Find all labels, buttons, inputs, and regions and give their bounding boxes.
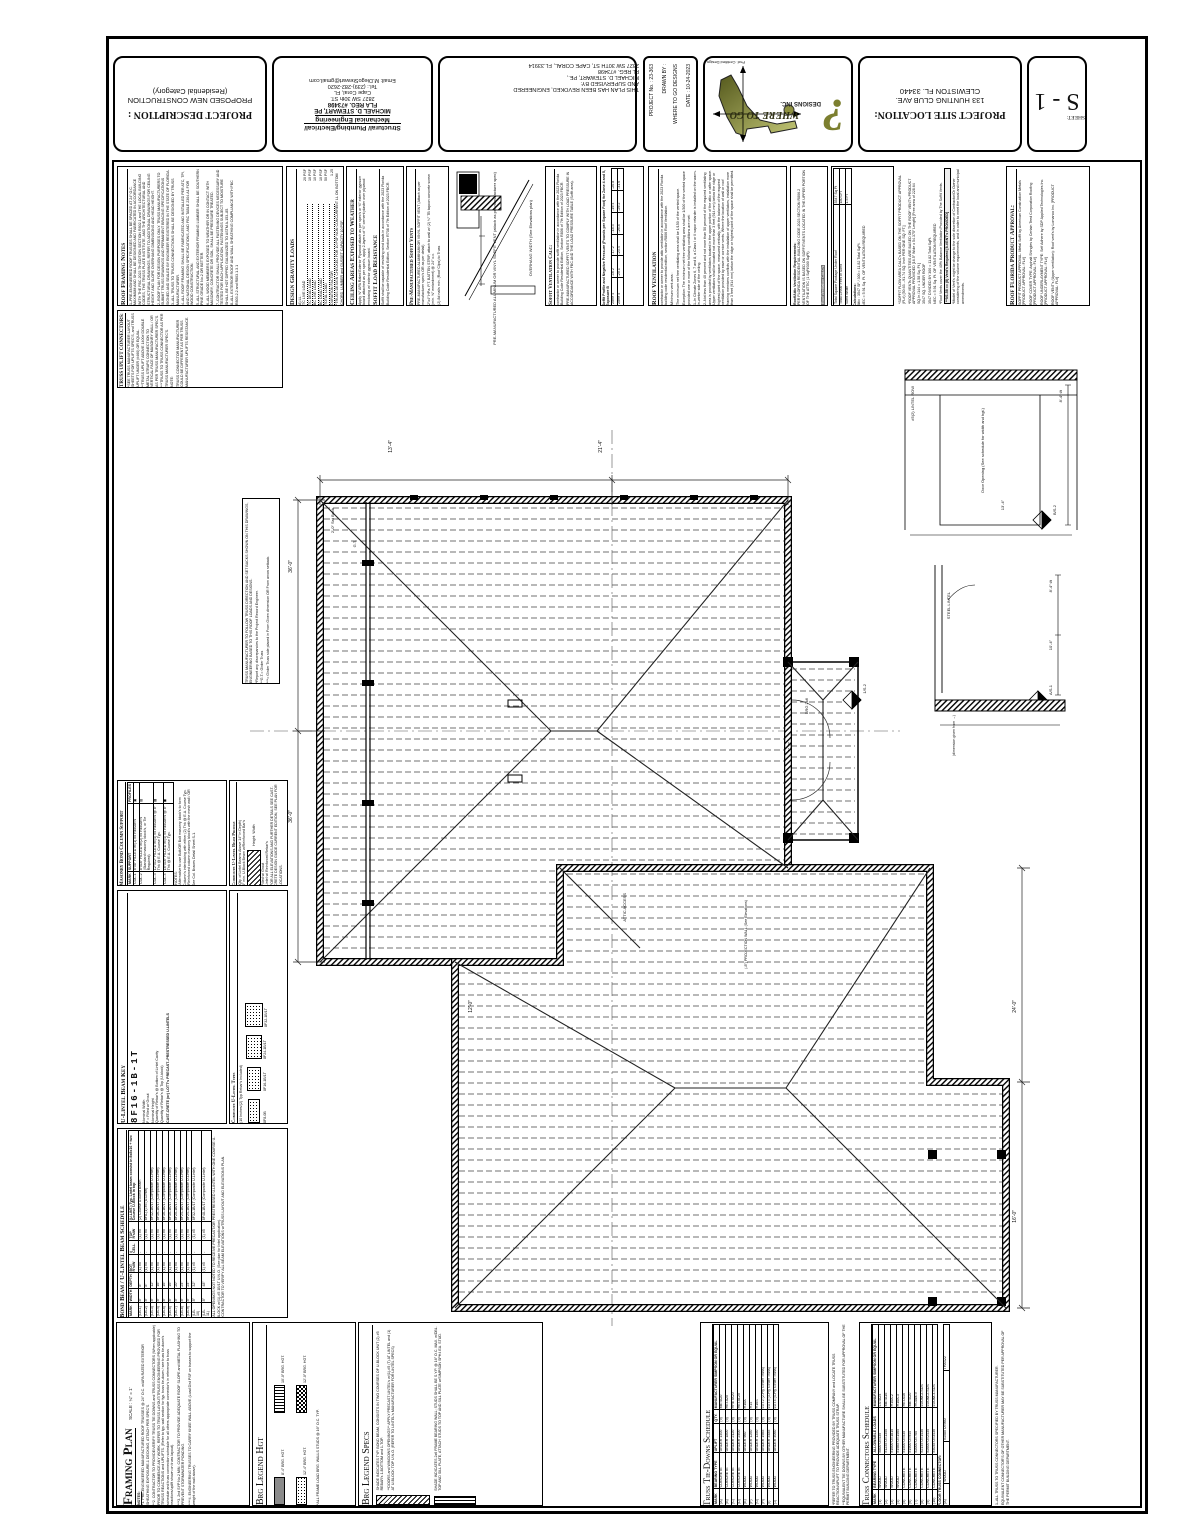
ceiling-body: Apply ⅝″ APA Rated Exterior Plywood atta… <box>358 169 371 305</box>
note-line: *Report any discrepancies to the Project… <box>255 501 259 683</box>
tie-downs-notes: *REFER TO TRUSS ENGINEERING PROVIDED BY … <box>831 1322 857 1506</box>
lintel-key-footnote: CAST-CRETE (or) LOTT's PRECAST–PRESTRESS… <box>166 893 170 1123</box>
note-line: NEC = 5.91 Sq. Ft. OF VENTILATION REQUIR… <box>933 168 937 304</box>
bb-bot: (1) #5 <box>192 1254 202 1273</box>
soffit-calc-title: Soffit Ventilation Calc: <box>548 169 555 305</box>
note-line: (2) 8d nails min. (Roof Clips) to Truss <box>437 169 441 305</box>
note-line: NOTE: <box>170 313 174 387</box>
note-girder-truss: TRUSS MANUFACTURER TO FOLLOW TRUSS DIREC… <box>242 498 280 684</box>
lintel-key-top: Quantity of Rebar's @ Top (U-block) <box>160 893 164 1123</box>
detail2-caption: (dimension given from →) <box>952 715 956 756</box>
bb-top: (1) #5 <box>192 1222 202 1240</box>
gravity-footnote: *TRUSS DESIGN CHECKED FOR 10 PSF NON CON… <box>335 169 344 305</box>
note-line: 1–ALL TRUSS TO TRUSS CONNECTORS SPECIFIE… <box>995 1323 999 1505</box>
note-line: **2. CONTRACTOR TO PROVIDE/VERIFY TRUSS … <box>152 1325 174 1505</box>
bond-beam-header: WIDTH <box>129 1288 139 1303</box>
note-product-approval: Roof Florida Product Approval: SOFFIT PR… <box>1006 166 1090 306</box>
dim-label: 16'-0″ <box>1012 1210 1018 1223</box>
lintel-profile-footnote: FOR ALL ELEVATIONS AND FURTHER DETAILS S… <box>270 782 283 886</box>
masonry-column-schedule: Masonry Bond Column Support MARKSUPPORTP… <box>117 780 227 886</box>
bond-beam-schedule: Bond Beam / U-Lintel Beam Schedule MARKW… <box>117 1128 288 1318</box>
note-line: **EQUIVALENT TIE DOWNS BY OTHER MANUFACT… <box>842 1323 851 1505</box>
note-line: *ROOF VENTs QUANTITIES ARE BASED ON THE … <box>908 168 921 304</box>
setback-label: 2'-0″ Set Back <box>330 508 335 533</box>
bb-cell: - <box>192 1240 202 1254</box>
brg-hgt-label: 10'-0″ BRG. HGT. <box>281 1355 285 1383</box>
note-line: 3547 SQ. UNDER ROOF <box>922 168 926 304</box>
masonry-col-profile: ▩ <box>153 783 163 804</box>
pressure-v4: -29.2 <box>617 190 623 212</box>
note-roof-ventilation: Roof Ventilation contractor or owner to … <box>648 166 787 306</box>
bb-depth: 32″ <box>192 1273 202 1288</box>
gravity-row-label: DURATION FACTOR <box>329 204 334 305</box>
note-line: **TRUSS UPLIFT ABOVE 1400# DOUBLE METAL … <box>141 313 159 387</box>
note-line: *Reinforced column masonry block's with … <box>187 782 196 886</box>
lintel-type-icon <box>245 1003 263 1027</box>
note-truss-uplift: TRUSS UPLIFT CONNECTORS: *SEE TRUSS MANU… <box>117 310 283 388</box>
vents-model-footnote: *Model of Vent's might be change to the … <box>952 168 965 304</box>
note-line: 4–ALL ROOF FRAMING SHALL BE FABRICATED A… <box>181 169 194 305</box>
bond-beam-row: (LB-10) 8″ 32″ (1) #5 - (1) #5 8F32-1B/1… <box>192 1131 202 1318</box>
framing-plan-titlebox: Framing Plan SCALE : ¼″ = 1' NOTES: *1. … <box>116 1322 250 1506</box>
brg-hgt-label: 12'-4″ BRG. HGT. <box>303 1447 307 1475</box>
bb-cell: - <box>202 1240 212 1254</box>
lintel-key-mark: 8F16-1B-1T <box>130 893 140 1123</box>
fc-loads: #1580 U=960 <box>943 1371 949 1442</box>
masonry-col-profile: ◼ <box>163 783 173 804</box>
td-manufacturer: LGT4 (4-Ply Girder Truss) <box>773 1325 779 1410</box>
patio-columns <box>928 1150 1006 1306</box>
bb-mark: (LB-10) <box>192 1303 202 1318</box>
lintel-type-label: 8F8-0B <box>263 1097 267 1123</box>
lintel-type-icon <box>246 1035 262 1059</box>
ceiling-title: Ceiling Areas Exposed to Weather <box>349 169 357 305</box>
dim-label: 12'-0″ <box>468 1000 474 1013</box>
note-line: 3–ALL TRUSS TO TRUSS CONNECTIONS SHALL B… <box>171 169 180 305</box>
bb-bot: (1) #5 <box>202 1254 212 1273</box>
vents-required-highlight: **9/1.58 == (8) Vent's Required [8-VENT'… <box>944 168 950 304</box>
detail-label-soffit-vent: PRE-MANUFACTURED ALUMINUM OR VINYL SOFFI… <box>492 172 497 345</box>
lintel-type-label: 8F16-1B/1T <box>263 1065 267 1091</box>
connectors-notes: 1–ALL TRUSS TO TRUSS CONNECTORS SPECIFIE… <box>994 1322 1076 1506</box>
detail-label-overhang: OVERHANG WIDTH (See Elevations plan) <box>528 200 533 276</box>
tie-downs-row: (J) WOOD UNDER 4060 (9) LGT4 (4-Ply Gird… <box>773 1325 779 1506</box>
lintel-type-icon <box>248 1099 260 1123</box>
brg-hgt-label: 12'-0″ BRG. HGT. <box>303 1355 307 1383</box>
brg-swatch-solid <box>274 1477 285 1505</box>
detail1-lintel-label: #5(2) LINTEL ROW <box>910 386 915 421</box>
tie-downs-title: Truss Tie-Downs Schedule <box>702 1324 713 1506</box>
bb-type: 8F48-1B/1T (Composite U-Lintel) <box>202 1131 212 1222</box>
dim-label: 24'-0″ <box>1012 1000 1018 1013</box>
pressure-v2: -23.4 <box>617 234 623 256</box>
lintel-type-label: 8F32-1B/1T <box>264 1001 268 1027</box>
lintel-profile-title: Composite U-Lintel Beam Profile <box>231 782 237 886</box>
note-ceiling-exposed: Ceiling Areas Exposed to Weather Apply ⅝… <box>346 166 404 306</box>
dim-label: 3'-2″ <box>788 742 794 752</box>
pressure-zone: Zone 5 <box>617 278 623 306</box>
vent-calc-line: NEC = 5.91 Sq. Ft. OF VENTILATION REQUIR… <box>862 168 866 306</box>
vent-calc-label: Soffit Width <box>845 205 851 306</box>
note-line: 7–CONTRACTOR SHALL PROVIDE ALL FASTENING… <box>216 169 229 305</box>
masonry-col-mark: COL-3 <box>153 872 163 886</box>
lintel-profile-box: Composite U-Lintel Beam Profile (Qty. of… <box>229 780 288 886</box>
brg-hgt-note: *ALL FRAME LOAD BRG. WALLS STUDS @ 16″ O… <box>316 1325 320 1505</box>
bond-beam-header: (U-LINT.) Typ. Lintel beam consist in 8x… <box>129 1131 139 1222</box>
lintel-types-box: Composite U-Lintel Types (10 Inches/(2) … <box>229 890 288 1124</box>
masonry-col-row: COL-4 16″x16″ FILLED w/(4) #5 REBAR's @ … <box>163 783 173 886</box>
brg-spec-item1b: **DOORS and WINDOWS OPENINGS** APPLY PRE… <box>387 1325 396 1490</box>
connectors-schedule: Truss Connectors Schedule MARKBEARING TY… <box>859 1322 992 1506</box>
note-line: *Alternative to use Bolt/OR Bolt masonry… <box>178 782 187 886</box>
note-line: ****4. ENGINEERING TRUSSES TO CARRY KNEE… <box>188 1325 197 1505</box>
soffit-load-title: Soffit Load Resistance <box>372 169 380 305</box>
dim-label: 13'-4″ <box>388 440 394 453</box>
brg-hgt-title: Brg Legend Hgt <box>255 1325 267 1505</box>
note-line: *CONTRACTOR TO VERIFY ALL BEAM ELEVATION… <box>221 1130 225 1318</box>
bond-beam-header: MARK <box>129 1303 139 1318</box>
td-bearing: WOOD <box>773 1453 779 1489</box>
note-line: EQUIVALENT CONNECTOR'S OF OTHER MANUFACT… <box>1001 1323 1010 1505</box>
note-line: ROOF COVER TYPE: Asphalt Shingles by Cer… <box>1029 169 1038 305</box>
bearing-label: BRG 2x6 <box>804 698 809 714</box>
bond-beam-title: Bond Beam / U-Lintel Beam Schedule <box>119 1130 127 1318</box>
brg-hgt-label: 8'-4″ BRG. HGT. <box>281 1449 285 1475</box>
note-line: **G.T.= Girder Truss <box>260 501 264 683</box>
brg-swatch-dots <box>296 1477 307 1505</box>
detail1-door-label: Door Opening (See schedule for width and… <box>980 408 985 493</box>
bb-mark: (LB-11) <box>202 1303 212 1318</box>
lintel-type-label: 8F24-1B/1T <box>263 1033 267 1059</box>
td-uplift: UNDER 4060 <box>773 1423 779 1453</box>
hip-ridge-lines <box>320 500 1006 1308</box>
note-line: 2–ROOF PLAN FOR DESIGN PURPOSES ONLY. TR… <box>157 169 170 305</box>
note-line: *1. PRE-ENGINEERED MANUFACTURED ROOF TRU… <box>141 1325 150 1505</box>
masonry-col-row: COL-3 12″x12″ FILLED w/(4) #5 REBAR's @ … <box>153 783 163 886</box>
bb-width: 8″ <box>202 1288 212 1303</box>
lintel-profile-drawing <box>247 850 261 886</box>
note-line: ROOF VENT's (Upper ventilation): Roof ve… <box>1051 169 1060 305</box>
note-line: *Roof Vents cover the 40% Balance Ventil… <box>939 168 943 304</box>
note-line: 2–Not less than 40 percent and not more … <box>703 169 734 305</box>
masonry-col-mark: COL-4 <box>163 872 173 886</box>
detail-steel-lintel <box>935 565 1065 725</box>
brg-spec-item1: SHADE INDICATES TYP. BOND BEAM, CONSISTS… <box>376 1325 385 1490</box>
note-truss-uplift-title: TRUSS UPLIFT CONNECTORS: <box>120 313 126 387</box>
detail2-steel-label: STEEL LINTEL <box>946 592 951 619</box>
note-line: Minimum vent area : <box>670 169 674 305</box>
bond-beam-header: DEPTH <box>129 1273 139 1288</box>
section-marker-label: 1/S-2 <box>862 684 867 694</box>
note-line: ***TRUSS TO TRUSS CONNECTOR AS PER TRUSS… <box>160 313 169 387</box>
vent-calc-value: 1.5 FT <box>845 169 851 205</box>
frame-wall-swatch <box>434 1496 476 1505</box>
note-line: TRUSS MANUFACTURER TO FOLLOW TRUSS DIREC… <box>245 501 254 683</box>
note-line: 8–ALL EXTERIOR ROOF AND WALL SHEATHING C… <box>230 169 239 305</box>
brg-swatch-check <box>296 1385 307 1413</box>
note-line: contractor or owner to provide attic ven… <box>660 169 669 305</box>
vent-calc-row: Soffit Width 1.5 FT <box>845 169 851 306</box>
bond-beam-header: # CELL <box>129 1240 139 1254</box>
td-qty: (9) <box>773 1410 779 1423</box>
pressure-table-title: Soffit Profile and Negative Pressure (Po… <box>602 168 611 306</box>
note-line: *SEE TRUSS MANUFACTURER LAYOUT SHEETS FO… <box>127 313 140 387</box>
entry-porch <box>783 657 859 843</box>
note-line: *ALL OPENINGS NOT NOTED TO RECEIVE PRECA… <box>212 1130 221 1318</box>
note-line: *REFER TO TRUSS ENGINEERING PROVIDED BY … <box>832 1323 841 1505</box>
note-line: 1–In Climate Zones 6, 7 and 8, a Class I… <box>693 169 702 305</box>
pressure-row: Zone 5 -20.1 -23.4 -26.8 -29.2 -31.6 <box>617 169 623 306</box>
detail1-dim2-label: 13'-4″ <box>1000 500 1005 510</box>
detail1-dim-label: 8'-4″ t/t <box>1058 390 1063 402</box>
tc-bearing: CONCRETE <box>932 1454 938 1489</box>
note-line: 6–ALL WOOD MEMBERS EXPOSED TO WEATHER OR… <box>206 169 215 305</box>
note-line: 2″x4″ HPa. P.T. BATTEN STRIP, attach to … <box>427 169 436 305</box>
bb-top: (1) #5 <box>202 1222 212 1240</box>
lintel-types-title: Composite U-Lintel Types <box>232 893 238 1123</box>
section-marker-label: A/S-1 <box>1048 685 1053 695</box>
bond-beam-swatch <box>376 1495 430 1505</box>
note-line: Exception: The minimum net free ventilat… <box>682 169 691 305</box>
masonry-col-row: COL-2 8″x16″ FILLED w/(2) #5 REBAR's (St… <box>139 783 153 886</box>
soffit-pressure-table: Soffit Profile and Negative Pressure (Po… <box>600 166 644 306</box>
gravity-row-value: 1.25 <box>329 169 334 204</box>
tc-mark: (10) <box>932 1489 938 1505</box>
dimension-lines <box>293 475 1030 1311</box>
bb-width: 8″ <box>192 1288 202 1303</box>
note-line: ROOF UNDERLAYMENT TYPE: Self Adhere by S… <box>1040 169 1049 305</box>
fc-bearing: WOOD <box>943 1442 949 1484</box>
brg-legend-specs: Brg Legend Specs SHADE INDICATES TYP. BO… <box>358 1322 543 1506</box>
note-roof-framing: Roof Framing Notes 1–PRE-ENGINEERED ROOF… <box>117 166 283 306</box>
masonry-col-support: 8″x16″ FILLED w/(2) #5 REBAR's (Standard… <box>139 803 153 871</box>
brg-spec-item2: SHADE INDICATES 2x6 FRAME BEARING WALL; … <box>434 1325 476 1491</box>
note-attic-requirements: Roof/Attic Ventilation Requirements: PER… <box>790 166 828 306</box>
section-marker-label: B/S-2 <box>1052 505 1057 515</box>
note-line: ***= Girder Truss side placed in From Gi… <box>266 501 270 683</box>
masonry-col-support: 12″x12″ FILLED w/(4) #5 REBAR's @ 8″ Thk… <box>153 803 163 871</box>
roof-vent-title: Roof Ventilation <box>651 169 659 305</box>
note-roof-framing-title: Roof Framing Notes <box>120 169 128 305</box>
note-line: *SOFFIT FLOW AREA CALC's BASED ON THE SO… <box>898 168 907 304</box>
brg-swatch-stripe <box>274 1385 285 1413</box>
note-line: The minimum net free ventilating area sh… <box>676 169 680 305</box>
soffit-calc-body: contractor or owner to provide soffit ve… <box>556 169 565 305</box>
floor-connector-row: (A) WOOD #1580 U=960 THA422 <box>943 1325 949 1506</box>
lintel-profile-height-label: Height <box>252 836 256 846</box>
lintel-type-icon <box>247 1067 261 1091</box>
brg-spec-title: Brg Legend Specs <box>361 1325 373 1505</box>
connectors-row: (10) CONCRETE #3035 U=3430 LGUM-3-SDS <box>932 1325 938 1506</box>
tc-loads: #3035 U=3430 <box>932 1408 938 1454</box>
attic-access-label: ATTIC ACCESS <box>622 893 627 922</box>
framing-plan-title: Framing Plan <box>120 1428 136 1505</box>
dim-label: 21'-4″ <box>598 440 604 453</box>
fc-manufacturer: THA422 <box>943 1325 949 1371</box>
lintel-key-title: U-Lintel Beam Key <box>120 893 128 1123</box>
brg-legend-hgt: Brg Legend Hgt 8'-4″ BRG. HGT. 10'-0″ BR… <box>252 1322 356 1506</box>
masonry-col-mark: COL-2 <box>139 872 153 886</box>
gravity-title: Design Gravity Loads <box>289 169 297 305</box>
fc-mark: (A) <box>943 1483 949 1505</box>
soffit-vents-title: Pre-Manufactured Soffit Vents <box>409 169 416 305</box>
soffit-load-body: Soffit shall be capable of resisting win… <box>381 169 390 305</box>
pressure-v3: -26.8 <box>617 212 623 234</box>
attic-req-link: Roof Ventilation CALC's <box>821 265 825 305</box>
detail2-dim-label: 10'-4″ <box>1048 640 1053 650</box>
gravity-row: DURATION FACTOR 1.25 <box>329 169 334 305</box>
bb-depth: 48″ <box>202 1273 212 1288</box>
bb-type: 8F32-1B/1T (Composite U-Lintel) <box>192 1131 202 1222</box>
note-line: 1–PRE-ENGINEERED ROOF TRUSSES SHALL BE S… <box>129 169 156 305</box>
note-line: 3547 DIVIDED BY 300 = 11.82 Total SqFt. <box>928 168 932 304</box>
masonry-col-profile: ▥ <box>139 783 153 804</box>
bond-beam-header: BOT R's/W <box>129 1254 139 1273</box>
note-line: SOFFIT PRODUCT APPROVAL: Metal Soffit by… <box>1018 169 1027 305</box>
exterior-walls <box>320 500 1006 1308</box>
masonry-column-title: Masonry Bond Column Support <box>119 782 126 886</box>
lintel-key-box: U-Lintel Beam Key 8F16-1B-1T Nominal Wid… <box>117 890 227 1124</box>
tie-downs-schedule: Truss Tie-Downs Schedule MARKBEARING TYP… <box>700 1322 829 1506</box>
note-soffit-flow: *SOFFIT FLOW AREA CALC's BASED ON THE SO… <box>896 166 1004 306</box>
td-mark: (J) <box>773 1489 779 1506</box>
projection-wall-label: (-8″) PROJECTION WALL (See Elevations) <box>744 900 748 969</box>
attic-req-body: PER FLORIDA RESIDENTIAL BUILDING CODE 20… <box>797 169 810 305</box>
note-line: ***3. 2nd SYP No.2 MIN. CONTRACTOR TO PR… <box>177 1325 186 1505</box>
sheet-page: PROJECT DESCRIPTION : PROPOSED NEW CONST… <box>0 0 1186 1536</box>
masonry-col-support: 16″x16″ FILLED w/(4) #5 REBAR's @ 8″ Thk… <box>163 803 173 871</box>
dim-label: 36'-0″ <box>288 560 294 573</box>
note-line: 5–ALL STRUCTURAL AND EXTERIOR FRAMING LU… <box>196 169 205 305</box>
lintel-types-sub: (10 Inches/(2) Typ Rebar's Included) <box>239 893 243 1123</box>
lintel-profile-width-label: Width <box>252 824 256 833</box>
detail2-dim2-label: 8'-4″ t/t <box>1048 580 1053 592</box>
pressure-v1: -20.1 <box>617 256 623 278</box>
soffit-calc-body2: PRE-MANUFACTURED SOFFIT VENTS TO COMPLY … <box>566 169 575 305</box>
bond-beam-header: TOP R's/W <box>129 1222 139 1240</box>
girder-truss-label: G.T. <box>352 540 357 547</box>
tc-manufacturer: LGUM-3-SDS <box>932 1325 938 1408</box>
note-soffit-calc: Soffit Ventilation Calc: contractor or o… <box>545 166 597 306</box>
pressure-v5: -31.6 <box>617 169 623 191</box>
bond-beam-row: (LB-11) 8″ 48″ (1) #5 - (1) #5 8F48-1B/1… <box>202 1131 212 1318</box>
product-approval-title: Roof Florida Product Approval: <box>1009 169 1017 305</box>
note-soffit-vents: Pre-Manufactured Soffit Vents PRE-MANUFA… <box>406 166 449 306</box>
connectors-title: Truss Connectors Schedule <box>861 1324 872 1506</box>
note-line: PRE-MANUFACTURED ALUMINUM OR VINYL SOFFI… <box>417 169 426 305</box>
vent-calc-table: Total Square Footage Under Roof 3547 Sq … <box>831 166 894 306</box>
note-design-gravity-loads: Design Gravity Loads A) LL : TC LIVE LOA… <box>286 166 344 306</box>
dim-label: 36'-0″ <box>288 810 294 823</box>
framing-plan-scale: SCALE : ¼″ = 1' <box>128 1388 133 1420</box>
note-line: TRUSS CONNECTOR MANUFACTURER COULD BE DI… <box>176 313 189 387</box>
